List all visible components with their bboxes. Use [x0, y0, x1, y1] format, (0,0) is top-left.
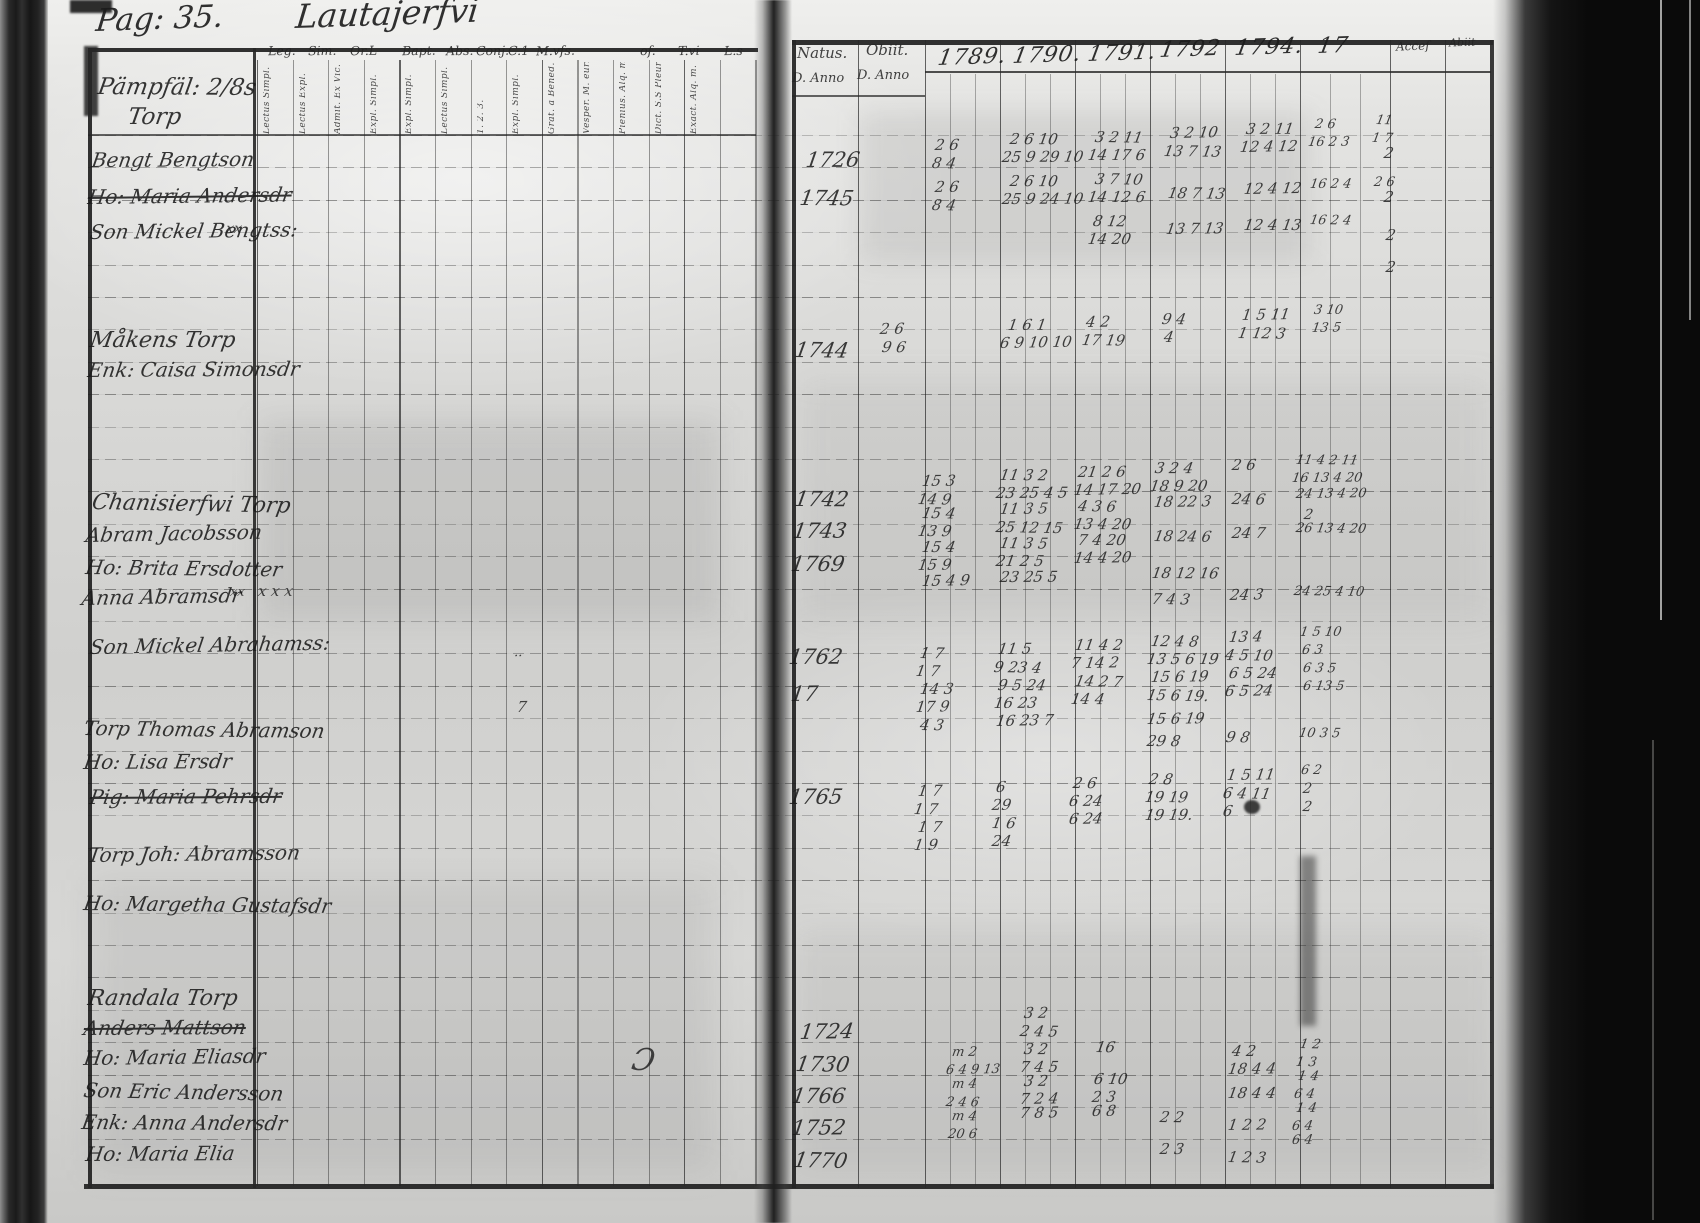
page-number-label: Pag: 35. [94, 1, 225, 37]
attendance-mark: 2 6 [879, 322, 905, 337]
attendance-mark: 1 7 [915, 664, 941, 679]
attendance-mark: 24 13 4 20 [1295, 487, 1367, 501]
microfilm-frame: Pag: 35. Lautajerfvi Natus. Obiit. D. An… [0, 0, 1700, 1223]
attendance-mark: 6 [995, 780, 1007, 795]
attendance-mark: 7 14 2 [1070, 655, 1120, 671]
grid-line [792, 40, 796, 1188]
grid-line [649, 60, 650, 1186]
ledger-entry: Pig: Maria Pehrsdr [88, 786, 283, 807]
grid-line [613, 60, 614, 1186]
natus-year: 17 [789, 684, 819, 705]
column-subheader: Expl. Simpl. [405, 62, 414, 134]
natus-year: 1745 [798, 188, 855, 209]
attendance-mark: 6 4 [1291, 1134, 1314, 1147]
attendance-mark: 21 2 6 [1077, 465, 1127, 480]
attendance-mark: 2 6 [934, 138, 960, 153]
column-group-label: Conj. [476, 45, 509, 58]
attendance-mark: 14 17 20 [1073, 482, 1142, 498]
column-subheader: 1. 2. 3. [477, 62, 486, 134]
natus-year: 1730 [794, 1054, 851, 1076]
attendance-mark: 15 3 [921, 474, 957, 489]
grid-line [1225, 40, 1226, 1188]
column-group-label: Sim. [308, 45, 337, 58]
attendance-mark: 9 23 4 [993, 660, 1043, 676]
attendance-mark: 4 5 10 [1224, 648, 1274, 664]
grid-line [1200, 74, 1201, 1186]
column-subheader: Vesper. M. eur. [583, 62, 592, 134]
ledger-entry: Ho: Maria Andersdr [87, 185, 294, 207]
attendance-mark: 15 6 19 [1146, 711, 1206, 727]
attendance-mark: 6 5 24 [1224, 683, 1274, 699]
attendance-mark: 26 13 4 20 [1295, 522, 1367, 536]
attendance-mark: 1 2 3 [1227, 1150, 1268, 1166]
natus-anno-subheader: D. Anno [792, 72, 844, 85]
year-column-header: 1792 [1158, 38, 1222, 62]
column-group-label: Leg. [268, 45, 296, 58]
ledger-entry: Ho: Maria Eliasdr [83, 1046, 267, 1068]
stray-ink-mark: Ɔ [630, 1046, 658, 1076]
column-subheader: Lectus Expl. [299, 62, 308, 134]
attendance-mark: 12 4 8 [1150, 634, 1200, 650]
column-subheader: Exact. Alq. m. [690, 62, 699, 134]
ledger-entry: Torp Thomas Abramson [82, 718, 326, 741]
attendance-mark: 2 4 5 [1019, 1024, 1060, 1040]
grid-line [1075, 40, 1076, 1188]
attendance-mark: 24 7 [1231, 526, 1267, 541]
grid-line [950, 74, 951, 1186]
attendance-mark: 6 5 24 [1228, 666, 1278, 681]
attendance-mark: 9 5 24 [997, 678, 1047, 693]
stray-ink-mark: xx [225, 222, 243, 236]
grid-line [925, 40, 926, 1188]
attendance-mark: 15 4 [921, 540, 957, 555]
attendance-mark: 8 4 [931, 198, 957, 213]
attendance-mark: 29 8 [1146, 734, 1182, 749]
natus-column-header: Natus. [797, 46, 847, 61]
attendance-mark: m 4 [951, 1110, 978, 1123]
attendance-mark: 18 12 16 [1151, 566, 1220, 581]
grid-line [1000, 40, 1001, 1188]
attendance-mark: 6 3 [1301, 644, 1324, 657]
attendance-mark: 17 9 [915, 699, 951, 715]
column-group-label: Abs. [446, 45, 474, 58]
stray-ink-mark: xx [229, 586, 246, 599]
attendance-mark: 11 4 2 [1074, 638, 1124, 653]
attendance-mark: 1 2 [1299, 1038, 1322, 1051]
attendance-mark: 16 [1095, 1040, 1117, 1055]
attendance-mark: 6 9 10 10 [999, 335, 1073, 351]
ledger-entry: Måkens Torp [88, 330, 237, 352]
natus-year: 1765 [787, 787, 844, 808]
attendance-mark: 25 9 24 10 [1001, 192, 1084, 207]
stray-ink-mark: x x x [257, 584, 294, 599]
attendance-mark: 11 4 2 11 [1295, 454, 1359, 467]
year-column-header: 17 [1316, 35, 1350, 58]
attendance-mark: 3 2 [1023, 1074, 1049, 1089]
attendance-mark: 7 4 20 [1077, 533, 1127, 548]
grid-line [1275, 74, 1276, 1186]
attendance-mark: 1 2 2 [1227, 1118, 1267, 1133]
attendance-mark: 14 3 [919, 682, 955, 697]
attendance-mark: 18 7 13 [1167, 186, 1227, 202]
grid-line [1445, 40, 1446, 1188]
obiit-anno-subheader: D. Anno [857, 69, 909, 82]
grid-line [1300, 40, 1301, 1188]
attendance-mark: 1 12 3 [1237, 326, 1287, 342]
attendance-mark: 2 6 [1231, 458, 1257, 473]
attendance-mark: 1 5 11 [1241, 307, 1291, 323]
attendance-mark: 1 3 [1295, 1056, 1318, 1069]
grid-line [684, 60, 685, 1186]
attendance-mark: 3 2 4 [1154, 461, 1195, 476]
book-spine-shadow [754, 0, 792, 1223]
attendance-mark: 9 8 [1225, 730, 1251, 745]
ledger-entry: Son Mickel Bengtss: [89, 219, 300, 242]
ledger-entry: Son Eric Andersson [82, 1080, 285, 1104]
grid-line [399, 60, 400, 1186]
stray-ink-mark: 7 [516, 700, 528, 715]
ledger-entry: Torp [126, 106, 183, 129]
attendance-mark: 11 3 5 [999, 536, 1049, 552]
attendance-mark: 16 2 4 [1309, 214, 1352, 228]
column-subheader: Expl. Simpl. [512, 62, 521, 134]
year-column-header: 1789. [936, 46, 1008, 70]
obiit-column-header: Obiit. [866, 43, 908, 58]
attendance-mark: 16 2 3 [1307, 136, 1350, 149]
grid-line [1390, 40, 1391, 1188]
attendance-mark: 16 13 4 20 [1291, 472, 1363, 485]
grid-line [720, 60, 721, 1186]
attendance-mark: 14 12 6 [1087, 190, 1147, 205]
attendance-mark: 1 6 [991, 816, 1017, 831]
attendance-mark: m 4 [951, 1078, 978, 1091]
attendance-mark: 18 4 4 [1227, 1086, 1277, 1101]
attendance-mark: 6 24 [1068, 794, 1104, 809]
attendance-mark: 18 24 6 [1153, 529, 1213, 545]
column-subheader: Admit. Ex Vic. [334, 62, 343, 134]
attendance-mark: 6 13 5 [1302, 680, 1345, 693]
ledger-entry: Pämpfäl: 2/8s [96, 76, 258, 100]
attendance-mark: 3 2 11 [1094, 130, 1144, 146]
film-scratch [1689, 0, 1691, 320]
attendance-mark: 1 4 [1297, 1070, 1320, 1083]
ledger-entry: Enk: Caisa Simonsdr [86, 359, 301, 380]
grid-line [1360, 74, 1361, 1186]
attendance-mark: 6 10 [1093, 1072, 1129, 1087]
attendance-mark: 2 6 [1314, 118, 1337, 131]
attendance-mark: 19 19. [1144, 808, 1194, 823]
film-scratch [1660, 0, 1662, 620]
attendance-mark: 8 4 [931, 156, 957, 171]
attendance-mark: 2 [1383, 190, 1395, 205]
attendance-mark: 2 8 [1148, 772, 1174, 787]
abiit-column-header: Abiit [1449, 37, 1476, 49]
attendance-mark: 18 22 3 [1153, 494, 1213, 510]
attendance-mark: 13 7 13 [1163, 144, 1223, 160]
attendance-mark: 1 7 [913, 802, 939, 817]
attendance-mark: 1 7 [917, 784, 943, 799]
attendance-mark: 2 6 [934, 180, 960, 195]
attendance-mark: 6 4 [1291, 1120, 1314, 1133]
year-column-header: 1790. [1011, 44, 1083, 68]
attendance-mark: 1 7 [919, 646, 945, 661]
natus-year: 1724 [799, 1021, 856, 1043]
column-group-label: Bapt. [402, 45, 436, 58]
attendance-mark: 24 3 [1229, 587, 1265, 603]
column-subheader: Grat. a Bened. [548, 62, 557, 134]
ledger-entry: Bengt Bengtson [90, 149, 255, 170]
attendance-mark: 7 8 5 [1019, 1105, 1059, 1121]
ledger-entry: Chanisierfwi Torp [90, 492, 292, 518]
book-title: Lautajerfvi [294, 0, 480, 33]
attendance-mark: 23 25 5 [999, 570, 1059, 585]
natus-year: 1726 [804, 150, 861, 171]
attendance-mark: 20 6 [947, 1128, 978, 1141]
column-group-label: Or.L [350, 45, 377, 58]
ledger-entry: Randala Torp [86, 988, 239, 1010]
attendance-mark: 2 6 10 [1009, 132, 1059, 147]
attendance-mark: 11 3 2 [999, 468, 1049, 483]
grid-line [1150, 40, 1151, 1188]
attendance-mark: 14 2 7 [1074, 674, 1124, 690]
attendance-mark: 6 8 [1091, 1104, 1117, 1119]
attendance-mark: 6 3 5 [1302, 662, 1337, 675]
ledger-entry: Anna Abramsdr [81, 585, 243, 608]
left-film-edge [0, 0, 48, 1223]
grid-line [1175, 74, 1176, 1186]
attendance-mark: 3 2 [1023, 1006, 1049, 1021]
ledger-entry: Enk: Anna Andersdr [80, 1112, 288, 1133]
film-scratch [1652, 740, 1654, 1220]
attendance-mark: 8 12 [1092, 214, 1128, 229]
attendance-mark: 15 4 [921, 506, 957, 522]
grid-line [858, 40, 859, 1188]
attendance-mark: 13 9 [917, 524, 953, 539]
attendance-mark: 21 2 5 [995, 554, 1045, 569]
grid-line [435, 60, 436, 1186]
column-subheader: Lectus Simpl. [263, 62, 272, 134]
column-group-label: C.1 [508, 45, 529, 58]
attendance-mark: 16 2 4 [1309, 178, 1352, 191]
grid-line [364, 60, 365, 1186]
natus-year: 1770 [792, 1150, 849, 1172]
grid-line [975, 74, 976, 1186]
column-group-label: M.vfs. [536, 45, 575, 58]
attendance-mark: 2 [1385, 260, 1397, 275]
attendance-mark: 6 4 [1293, 1088, 1316, 1101]
attendance-mark: 3 10 [1313, 304, 1344, 317]
attendance-mark: 14 20 [1087, 232, 1132, 247]
grid-line [1050, 74, 1051, 1186]
attendance-mark: 12 4 12 [1239, 139, 1299, 155]
grid-line [577, 60, 578, 1186]
attendance-mark: 11 [1375, 114, 1394, 127]
natus-year: 1742 [793, 489, 850, 510]
accessit-column-header: Acceſ [1396, 39, 1430, 52]
attendance-mark: 15 6 19. [1146, 688, 1210, 704]
attendance-mark: 4 2 [1231, 1044, 1257, 1059]
attendance-mark: 3 2 10 [1169, 125, 1219, 141]
ledger-entry: Ho: Margetha Gustafsdr [82, 893, 332, 916]
natus-year: 1766 [790, 1086, 847, 1107]
attendance-mark: 9 6 [881, 340, 907, 355]
attendance-mark: 25 9 29 10 [1001, 150, 1084, 165]
attendance-mark: 1 7 [917, 820, 943, 835]
ledger-entry: Ho: Lisa Ersdr [82, 751, 233, 772]
natus-year: 1762 [787, 647, 844, 668]
natus-year: 1769 [789, 554, 846, 575]
attendance-mark: 3 2 [1023, 1042, 1049, 1057]
attendance-mark: 2 3 [1159, 1142, 1185, 1157]
attendance-mark: 11 3 5 [999, 501, 1049, 517]
attendance-mark: 7 4 3 [1151, 592, 1192, 607]
attendance-mark: 1 4 [1295, 1102, 1318, 1115]
attendance-mark: 3 2 11 [1245, 122, 1295, 137]
column-subheader: Pienius. Alq. m. [619, 62, 628, 134]
ledger-entry: Ho: Maria Elia [84, 1143, 236, 1164]
attendance-mark: 6 24 [1068, 811, 1104, 827]
attendance-mark: 6 4 11 [1222, 786, 1272, 802]
attendance-mark: 1 5 11 [1226, 767, 1276, 783]
attendance-mark: 4 [1163, 330, 1175, 345]
column-subheader: Dict. S.S Pleuris. [655, 62, 664, 134]
year-column-header: 1794. [1233, 36, 1305, 60]
attendance-mark: 15 4 9 [921, 573, 971, 589]
attendance-mark: 14 17 6 [1087, 148, 1147, 163]
attendance-mark: 9 4 [1161, 312, 1187, 327]
grid-line [328, 60, 329, 1186]
attendance-mark: 4 3 [919, 718, 945, 733]
attendance-mark: 2 [1383, 146, 1395, 161]
attendance-mark: 1 9 [913, 838, 939, 853]
attendance-mark: 6 4 9 13 [945, 1063, 1001, 1077]
attendance-mark: 24 [991, 834, 1012, 849]
attendance-mark: 1 6 1 [1007, 318, 1047, 333]
attendance-mark: 2 6 [1072, 776, 1098, 791]
attendance-mark: 12 4 12 [1243, 181, 1303, 197]
natus-year: 1743 [791, 521, 848, 542]
attendance-mark: 17 19 [1081, 333, 1126, 349]
attendance-mark: 13 5 [1311, 321, 1342, 335]
attendance-mark: 13 5 6 19 [1146, 652, 1220, 667]
grid-line [925, 71, 1491, 73]
ledger-entry: Ho: Brita Ersdotter [84, 557, 283, 579]
ledger-entry: Abram Jacobsson [85, 522, 264, 545]
natus-year: 1752 [790, 1117, 847, 1139]
attendance-mark: m 2 [951, 1046, 978, 1059]
ledger-entry: Anders Mattson [82, 1017, 247, 1038]
attendance-mark: 29 [991, 798, 1012, 813]
attendance-mark: 6 [1222, 804, 1234, 819]
attendance-mark: 6 2 [1300, 764, 1323, 777]
attendance-mark: 2 6 10 [1009, 174, 1059, 189]
grid-line [471, 60, 472, 1186]
natus-year: 1744 [793, 340, 850, 362]
column-subheader: Expl. Simpl. [370, 62, 379, 134]
attendance-mark: 2 2 [1159, 1110, 1185, 1125]
attendance-mark: 1 5 10 [1299, 626, 1342, 639]
attendance-mark: 10 3 5 [1298, 727, 1341, 740]
grid-line [542, 60, 543, 1186]
year-column-header: 1791. [1086, 42, 1158, 66]
grid-line [506, 60, 507, 1186]
column-group-label: of. [640, 45, 656, 58]
attendance-mark: 4 2 [1085, 315, 1111, 330]
attendance-mark: 11 5 [997, 642, 1033, 657]
ledger-entry: Son Mickel Abrahamss: [89, 633, 332, 657]
attendance-mark: 18 4 4 [1227, 1061, 1277, 1077]
attendance-mark: 15 6 19 [1150, 669, 1210, 685]
attendance-mark: 16 23 [993, 696, 1038, 711]
attendance-mark: 3 7 10 [1094, 172, 1144, 188]
right-film-edge [1493, 0, 1700, 1223]
attendance-mark: 2 [1385, 228, 1397, 243]
attendance-mark: 4 3 6 [1077, 499, 1118, 515]
attendance-mark: 2 4 6 [945, 1096, 980, 1109]
column-subheader: Lectus Simpl. [441, 62, 450, 134]
attendance-mark: 14 4 [1070, 692, 1106, 707]
attendance-mark: 14 4 20 [1073, 550, 1133, 566]
ledger-entry: Torp Joh: Abramsson [87, 842, 302, 865]
attendance-mark: 19 19 [1144, 790, 1189, 805]
attendance-mark: 13 7 13 [1165, 221, 1225, 237]
attendance-mark: 16 23 7 [995, 713, 1055, 729]
attendance-mark: 24 6 [1231, 492, 1267, 508]
column-group-label: T.vi [678, 45, 700, 58]
attendance-mark: 24 25 4 10 [1293, 585, 1365, 599]
attendance-mark: 12 4 13 [1243, 218, 1303, 233]
column-group-label: L.s [724, 45, 743, 58]
attendance-mark: 13 4 [1228, 629, 1264, 645]
grid-line [792, 95, 925, 97]
